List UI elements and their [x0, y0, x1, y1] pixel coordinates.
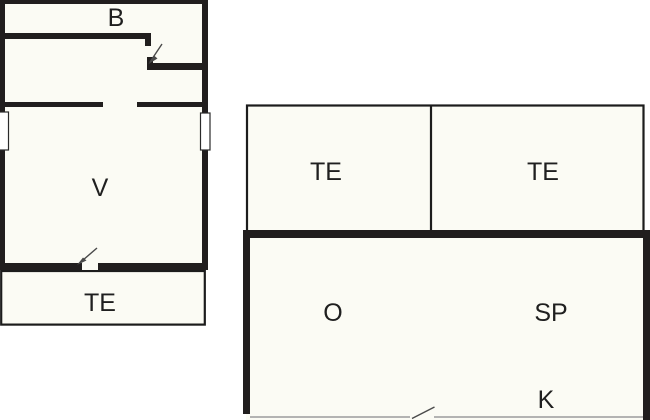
room-v-top-wall-right-segment — [137, 102, 208, 107]
right-building-floor — [246, 234, 644, 420]
room-label-o: O — [323, 299, 342, 327]
right-building-wall-left — [243, 230, 250, 414]
right-building-wall-top — [243, 230, 650, 238]
floor-plan-drawing: B V TE TE TE O SP K — [0, 0, 650, 420]
room-label-te-1: TE — [310, 158, 342, 186]
room-label-te-2: TE — [527, 158, 559, 186]
left-building-wall-bottom-left-segment — [0, 263, 82, 270]
right-building-wall-right — [643, 230, 650, 420]
left-building-wall-bottom-right-segment — [98, 263, 208, 270]
right-building: TE TE O SP K — [243, 105, 650, 420]
window-right-wall — [201, 113, 211, 150]
room-label-te-left: TE — [84, 289, 116, 317]
room-v-top-wall-left-segment — [0, 102, 103, 107]
room-b-wall-left-jamb — [145, 33, 151, 46]
room-label-k: K — [538, 386, 555, 414]
left-building-wall-top — [0, 0, 208, 4]
room-b-wall-right-segment — [147, 63, 208, 70]
right-terrace-outline — [247, 106, 644, 232]
room-label-v: V — [92, 174, 109, 202]
room-label-b: B — [108, 4, 125, 32]
left-building-floor — [0, 0, 208, 270]
floor-plan-canvas: B V TE TE TE O SP K — [0, 0, 650, 420]
left-building: B V TE — [0, 0, 210, 325]
room-label-sp: SP — [534, 299, 567, 327]
window-left-wall — [0, 112, 9, 150]
room-b-wall-left-segment — [0, 33, 151, 39]
